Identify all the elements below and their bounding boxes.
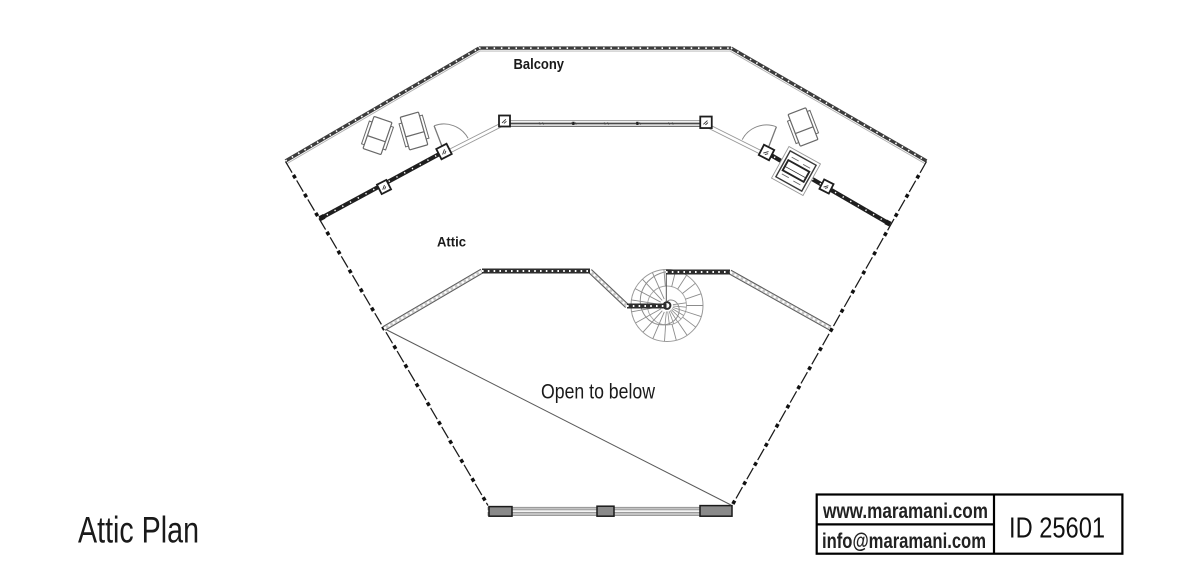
svg-text:info@maramani.com: info@maramani.com (822, 530, 986, 553)
svg-text:Balcony: Balcony (514, 57, 565, 73)
svg-text:Attic Plan: Attic Plan (78, 510, 199, 551)
svg-text:Open to below: Open to below (541, 380, 655, 404)
svg-text:Attic: Attic (437, 234, 466, 249)
svg-text:ID 25601: ID 25601 (1009, 513, 1105, 545)
svg-text:www.maramani.com: www.maramani.com (822, 500, 988, 523)
